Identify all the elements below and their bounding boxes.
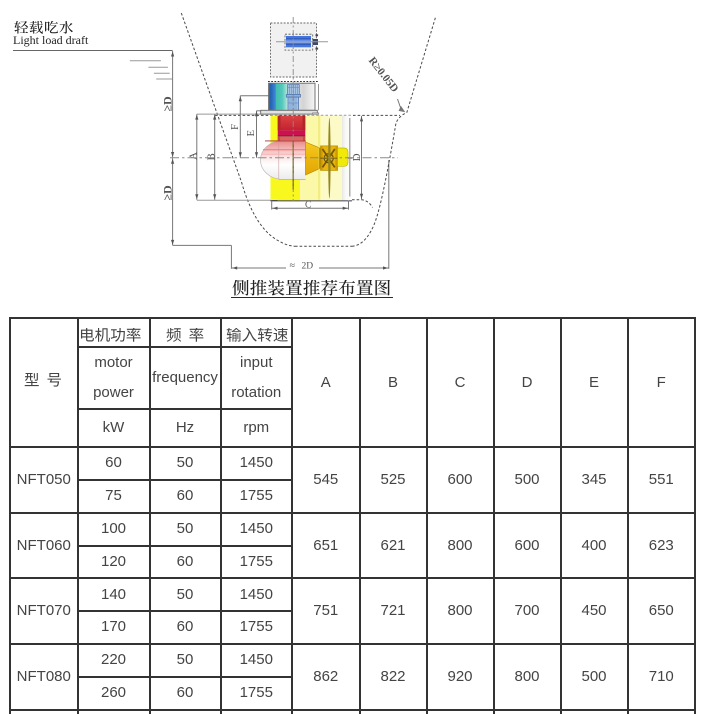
svg-text:≥D: ≥D xyxy=(161,185,175,201)
svg-text:2D: 2D xyxy=(302,261,314,271)
svg-text:A: A xyxy=(187,152,199,160)
svg-text:≈: ≈ xyxy=(290,260,296,271)
svg-text:B: B xyxy=(205,153,217,160)
svg-text:C: C xyxy=(305,200,311,210)
svg-text:R≥0.05D: R≥0.05D xyxy=(366,55,401,95)
svg-text:F: F xyxy=(230,124,241,130)
svg-text:≥D: ≥D xyxy=(161,96,175,112)
svg-text:E: E xyxy=(246,130,257,136)
